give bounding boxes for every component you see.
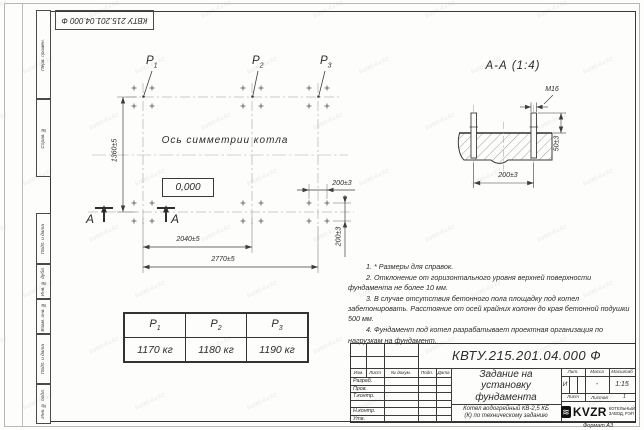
margin-label: Подп. и дата (41, 344, 46, 374)
point-label-p1: P1 (146, 55, 158, 69)
dim-bolt-vertical: 200±3 (336, 219, 343, 255)
load-table: P1 P2 P3 1170 кг 1180 кг 1190 кг (123, 312, 309, 363)
row-prov: Пров. (353, 386, 367, 392)
p2-name: P (252, 55, 260, 67)
top-designation-stamp: КВТУ 215.201.04.000 Ф (55, 10, 154, 30)
doc-subtitle-cell: Котел водогрейный КВ-2,5 КБ (К) по техни… (451, 404, 561, 422)
h2-name: P (210, 318, 217, 330)
margin-box-podp-data-1: Подп. и дата (36, 213, 51, 265)
h1-sub: 1 (157, 326, 161, 333)
margin-box-sprav-no: Справ. № (36, 98, 51, 177)
section-letter-left: А (86, 212, 94, 226)
load-value-p1: 1170 кг (124, 338, 186, 363)
sheet-label: Лист (561, 393, 585, 401)
format-label: Формат А3 (560, 423, 636, 429)
point-label-p2: P2 (252, 55, 264, 69)
dim-2040: 2040±5 (158, 236, 218, 243)
doc-title: Задание на установку фундамента (466, 369, 546, 404)
kvzr-logo-caption: КОТЕЛЬНЫЙ ЗАВОД, РЭП (609, 407, 635, 417)
dim-200-section: 200±3 (488, 172, 528, 179)
doc-number: КВТУ.215.201.04.000 Ф (418, 344, 635, 368)
col-podp: Подп. (418, 368, 436, 377)
row-razrab: Разраб. (353, 378, 372, 384)
title-block: КВТУ.215.201.04.000 Ф Изм. Лист № докум.… (350, 343, 636, 423)
lit-value: И (561, 376, 569, 393)
p2-sub: 2 (260, 62, 264, 69)
margin-label: Взам. инв. № (41, 302, 46, 331)
drawing-sheet: kotel-kv.kzkotel-kv.kzkotel-kv.kzkotel-k… (0, 0, 644, 430)
col-izm: Изм. (351, 368, 366, 377)
note-1: 1. * Размеры для справок. (348, 262, 632, 272)
massa-value: - (585, 376, 609, 393)
doc-subtitle: Котел водогрейный КВ-2,5 КБ (К) по техни… (462, 406, 550, 420)
load-table-value-row: 1170 кг 1180 кг 1190 кг (124, 338, 308, 363)
section-letter-right: А (171, 212, 179, 226)
load-header-p2: P2 (186, 313, 247, 338)
sheets-value: 1 (623, 394, 626, 400)
dim-2770: 2770±5 (193, 256, 253, 263)
margin-label: Инв. № дубл. (41, 267, 46, 296)
dim-50: 50±3 (554, 131, 561, 157)
p3-sub: 3 (328, 62, 332, 69)
load-header-p1: P1 (124, 313, 186, 338)
h3-name: P (271, 318, 278, 330)
masshtab-value: 1:15 (609, 376, 635, 393)
margin-box-podp-data-2: Подп. и дата (36, 333, 51, 385)
lit-label: Лит. (561, 368, 585, 376)
dim-bolt-horizontal: 200±3 (322, 180, 362, 187)
p3-name: P (320, 55, 328, 67)
binding-margin-line (22, 3, 23, 426)
load-header-p3: P3 (247, 313, 309, 338)
dim-1360: 1360±5 (112, 132, 119, 170)
h1-name: P (149, 318, 156, 330)
margin-box-perv-primen: Перв. примен. (36, 10, 51, 100)
margin-box-inv-dubl: Инв. № дубл. (36, 263, 51, 300)
margin-label: Справ. № (41, 127, 46, 149)
margin-box-vzam-inv: Взам. инв. № (36, 298, 51, 335)
kvzr-caption-line2: ЗАВОД, РЭП (609, 412, 635, 417)
h3-sub: 3 (279, 326, 283, 333)
margin-label: Инв. № подл. (41, 389, 46, 419)
doc-title-cell: Задание на установку фундамента (451, 368, 561, 404)
p1-name: P (146, 55, 154, 67)
manufacturer-cell: ≋ KVZR КОТЕЛЬНЫЙ ЗАВОД, РЭП (561, 401, 635, 422)
symmetry-axis-label: Ось симметрии котла (150, 135, 300, 146)
row-utv: Утв. (353, 416, 365, 422)
section-title: А-А (1:4) (472, 60, 554, 72)
masshtab-label: Масштаб (609, 368, 635, 376)
massa-label: Масса (585, 368, 609, 376)
point-label-p3: P3 (320, 55, 332, 69)
margin-box-inv-podl: Инв. № подл. (36, 383, 51, 424)
p1-sub: 1 (154, 62, 158, 69)
level-mark: 0,000 (162, 178, 214, 197)
col-data: Дата (436, 368, 451, 377)
col-dokum: № докум. (384, 368, 418, 377)
margin-label: Перв. примен. (41, 39, 46, 71)
h2-sub: 2 (218, 326, 222, 333)
sheets-label: Листов (591, 395, 608, 400)
note-2: 2. Отклонение от горизонтального уровня … (348, 273, 632, 293)
col-list: Лист (366, 368, 384, 377)
kvzr-logo-text: KVZR (573, 405, 607, 419)
margin-label: Подп. и дата (41, 224, 46, 254)
technical-notes: 1. * Размеры для справок. 2. Отклонение … (348, 262, 632, 347)
row-tkontr: Т.контр. (353, 393, 374, 399)
note-3: 3. В случае отсутствия бетонного пола пл… (348, 294, 632, 324)
load-value-p2: 1180 кг (186, 338, 247, 363)
kvzr-emblem-icon: ≋ (561, 406, 571, 418)
row-nkontr: Н.контр. (353, 408, 375, 414)
top-designation-text: КВТУ 215.201.04.000 Ф (56, 11, 153, 29)
load-value-p3: 1190 кг (247, 338, 309, 363)
dim-m16: М16 (540, 86, 564, 93)
load-table-header-row: P1 P2 P3 (124, 313, 308, 338)
